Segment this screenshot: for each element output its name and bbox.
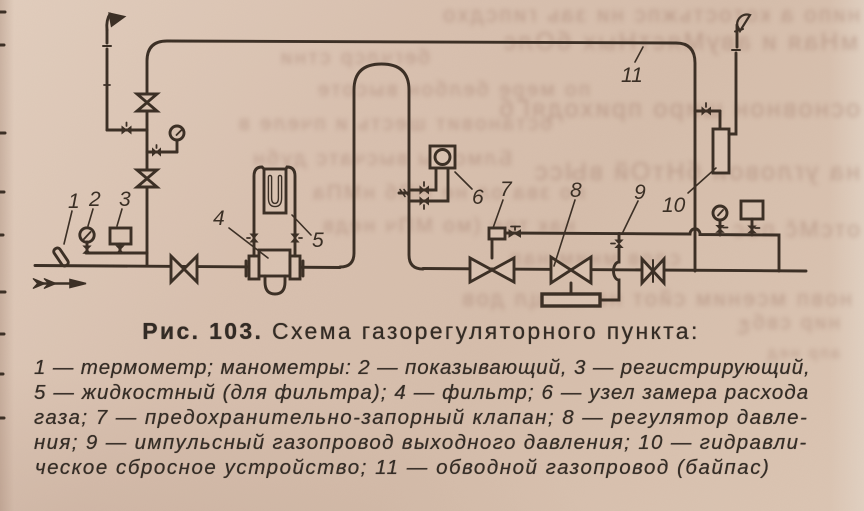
svg-text:2: 2 [88, 188, 101, 211]
svg-text:10: 10 [662, 194, 686, 217]
svg-text:4: 4 [213, 207, 225, 230]
svg-text:7: 7 [500, 178, 513, 201]
svg-text:11: 11 [621, 64, 643, 87]
svg-text:3: 3 [119, 188, 131, 211]
svg-text:6: 6 [472, 186, 484, 209]
svg-text:8: 8 [570, 179, 582, 202]
svg-text:5: 5 [312, 229, 324, 252]
svg-text:1: 1 [68, 190, 80, 213]
svg-text:9: 9 [634, 181, 646, 204]
